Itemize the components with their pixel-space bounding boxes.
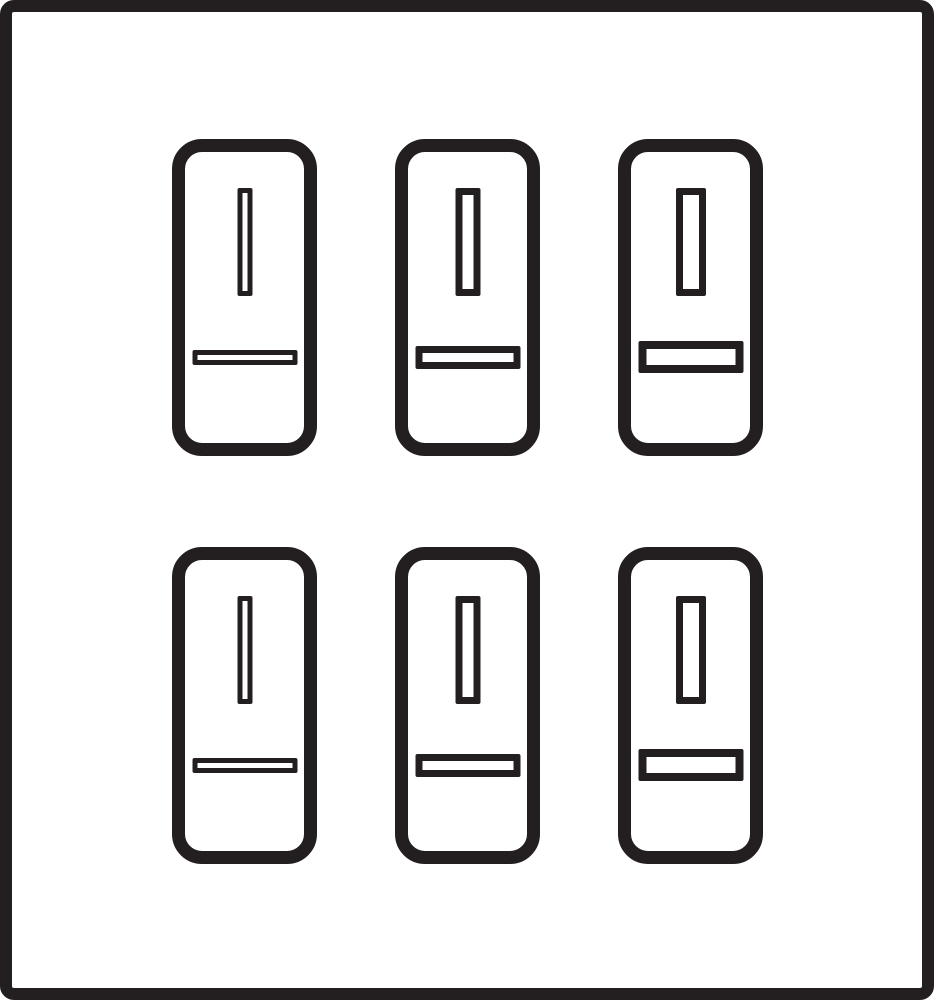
door-handle-bar <box>455 188 480 296</box>
door-handle-bar <box>237 188 252 296</box>
refrigerator-icon <box>395 139 540 456</box>
refrigerator-icon <box>395 547 540 864</box>
door-handle-bar <box>455 596 480 704</box>
door-handle-bar <box>676 188 706 296</box>
refrigerator-icon <box>172 547 317 864</box>
drawer-handle-bar <box>192 350 297 365</box>
refrigerator-icon <box>618 139 763 456</box>
drawer-handle-bar <box>192 758 297 773</box>
pictogram-grid <box>172 139 763 863</box>
refrigerator-icon <box>618 547 763 864</box>
drawer-handle-bar <box>415 346 520 369</box>
drawer-handle-bar <box>638 749 743 781</box>
refrigerator-icon <box>172 139 317 456</box>
drawer-handle-bar <box>415 754 520 777</box>
door-handle-bar <box>676 596 706 704</box>
drawer-handle-bar <box>638 341 743 373</box>
door-handle-bar <box>237 596 252 704</box>
